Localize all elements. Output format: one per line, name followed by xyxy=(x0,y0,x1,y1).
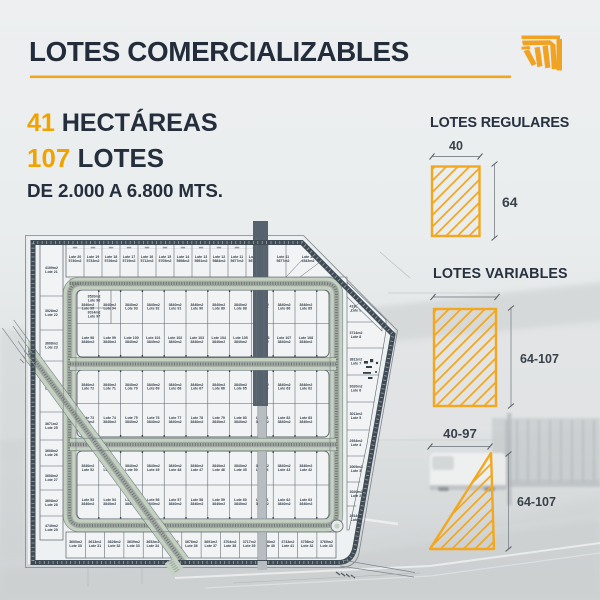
svg-text:3840m2: 3840m2 xyxy=(299,420,312,424)
svg-text:107 LOTES: 107 LOTES xyxy=(27,145,164,173)
svg-text:Lote 34: Lote 34 xyxy=(147,544,159,548)
svg-text:Lote 49: Lote 49 xyxy=(147,468,159,472)
svg-text:Lote 50: Lote 50 xyxy=(125,468,137,472)
svg-text:Lote 26: Lote 26 xyxy=(45,453,57,457)
svg-text:Lote 94: Lote 94 xyxy=(103,307,115,311)
svg-text:3840m2: 3840m2 xyxy=(299,340,312,344)
svg-text:Lote 45: Lote 45 xyxy=(234,468,246,472)
svg-text:Lote 21: Lote 21 xyxy=(45,270,57,274)
svg-text:Lote 92: Lote 92 xyxy=(147,307,159,311)
svg-text:5733m2: 5733m2 xyxy=(86,259,99,263)
svg-text:Lote 42: Lote 42 xyxy=(301,544,313,548)
svg-text:3840m2: 3840m2 xyxy=(169,502,182,506)
svg-text:Lote 97: Lote 97 xyxy=(88,314,100,318)
svg-text:3840m2: 3840m2 xyxy=(125,340,138,344)
svg-text:Lote 65: Lote 65 xyxy=(234,387,246,391)
svg-text:Lote 42: Lote 42 xyxy=(300,468,312,472)
svg-text:Lote 62: Lote 62 xyxy=(300,387,312,391)
svg-text:Lote 89: Lote 89 xyxy=(212,307,224,311)
svg-text:Lote 71: Lote 71 xyxy=(103,387,115,391)
svg-text:Lote 88: Lote 88 xyxy=(234,307,246,311)
svg-text:3840m2: 3840m2 xyxy=(147,420,160,424)
svg-text:3840m2: 3840m2 xyxy=(190,502,203,506)
svg-text:5698m2: 5698m2 xyxy=(176,259,189,263)
svg-text:3840m2: 3840m2 xyxy=(169,420,182,424)
svg-text:Lote 90: Lote 90 xyxy=(191,307,203,311)
svg-text:Lote 72: Lote 72 xyxy=(82,387,94,391)
svg-text:Lote 37: Lote 37 xyxy=(204,544,216,548)
svg-text:Lote 47: Lote 47 xyxy=(191,468,203,472)
svg-text:Lote 43: Lote 43 xyxy=(320,544,332,548)
svg-text:Lote 29: Lote 29 xyxy=(45,528,57,532)
svg-text:3840m2: 3840m2 xyxy=(212,340,225,344)
svg-text:40-97: 40-97 xyxy=(443,426,477,441)
svg-text:LOTES VARIABLES: LOTES VARIABLES xyxy=(433,266,568,282)
svg-text:3840m2: 3840m2 xyxy=(103,502,116,506)
svg-text:Lote 93: Lote 93 xyxy=(125,307,137,311)
svg-text:Lote 28: Lote 28 xyxy=(45,503,57,507)
svg-text:LOTES REGULARES: LOTES REGULARES xyxy=(430,115,569,131)
svg-text:3840m2: 3840m2 xyxy=(103,420,116,424)
svg-text:3840m2: 3840m2 xyxy=(299,502,312,506)
svg-text:3840m2: 3840m2 xyxy=(278,502,291,506)
svg-text:Lote 68: Lote 68 xyxy=(169,387,181,391)
svg-text:3840m2: 3840m2 xyxy=(278,340,291,344)
svg-text:Lote 41: Lote 41 xyxy=(282,544,294,548)
svg-text:3840m2: 3840m2 xyxy=(81,340,94,344)
svg-text:5740m2: 5740m2 xyxy=(68,259,81,263)
svg-text:Lote 66: Lote 66 xyxy=(212,387,224,391)
svg-text:3840m2: 3840m2 xyxy=(147,340,160,344)
svg-text:Lote 43: Lote 43 xyxy=(278,468,290,472)
svg-text:5712m2: 5712m2 xyxy=(140,259,153,263)
svg-text:Lote 48: Lote 48 xyxy=(169,468,181,472)
svg-text:Lote 52: Lote 52 xyxy=(82,468,94,472)
svg-text:5677m2: 5677m2 xyxy=(230,259,243,263)
svg-text:5691m2: 5691m2 xyxy=(194,259,207,263)
svg-text:Lote 86: Lote 86 xyxy=(278,307,290,311)
svg-text:3840m2: 3840m2 xyxy=(234,420,247,424)
svg-text:3840m2: 3840m2 xyxy=(234,340,247,344)
svg-text:Lote 3: Lote 3 xyxy=(351,469,361,473)
svg-text:41 HECTÁREAS: 41 HECTÁREAS xyxy=(27,108,218,137)
svg-text:5726m2: 5726m2 xyxy=(104,259,117,263)
svg-text:64-107: 64-107 xyxy=(520,352,559,366)
svg-text:3840m2: 3840m2 xyxy=(212,502,225,506)
svg-text:Lote 39: Lote 39 xyxy=(243,544,255,548)
svg-text:64-107: 64-107 xyxy=(517,495,556,509)
svg-text:Lote 22: Lote 22 xyxy=(45,313,57,317)
svg-text:Lote 63: Lote 63 xyxy=(278,387,290,391)
svg-text:3840m2: 3840m2 xyxy=(125,420,138,424)
svg-text:3840m2: 3840m2 xyxy=(212,420,225,424)
svg-text:4543m2: 4543m2 xyxy=(301,259,314,263)
svg-text:40: 40 xyxy=(449,139,463,153)
svg-text:3840m2: 3840m2 xyxy=(190,340,203,344)
svg-text:3840m2: 3840m2 xyxy=(169,340,182,344)
svg-text:Lote 5: Lote 5 xyxy=(351,416,361,420)
svg-text:3840m2: 3840m2 xyxy=(234,502,247,506)
svg-text:Lote 8: Lote 8 xyxy=(351,335,361,339)
svg-text:3840m2: 3840m2 xyxy=(190,420,203,424)
svg-text:Lote 32: Lote 32 xyxy=(108,544,120,548)
svg-text:Lote 33: Lote 33 xyxy=(127,544,139,548)
svg-text:Lote 38: Lote 38 xyxy=(224,544,236,548)
svg-text:LOTES COMERCIALIZABLES: LOTES COMERCIALIZABLES xyxy=(29,36,409,67)
svg-text:Lote 70: Lote 70 xyxy=(125,387,137,391)
svg-text:Lote 30: Lote 30 xyxy=(69,544,81,548)
svg-text:5677m2: 5677m2 xyxy=(276,259,289,263)
svg-text:3840m2: 3840m2 xyxy=(103,340,116,344)
svg-text:Lote 2: Lote 2 xyxy=(351,494,361,498)
svg-text:Lote 69: Lote 69 xyxy=(147,387,159,391)
svg-text:Lote 7: Lote 7 xyxy=(351,361,361,365)
svg-text:Lote 96: Lote 96 xyxy=(88,298,100,302)
svg-text:Lote 6: Lote 6 xyxy=(351,388,361,392)
svg-text:Lote 25: Lote 25 xyxy=(45,426,57,430)
svg-text:Lote 23: Lote 23 xyxy=(45,345,57,349)
svg-text:5684m2: 5684m2 xyxy=(212,259,225,263)
svg-text:Lote 27: Lote 27 xyxy=(45,478,57,482)
svg-text:5705m2: 5705m2 xyxy=(158,259,171,263)
svg-text:DE 2.000 A 6.800 MTS.: DE 2.000 A 6.800 MTS. xyxy=(27,180,223,201)
svg-text:Lote 46: Lote 46 xyxy=(212,468,224,472)
svg-text:Lote 85: Lote 85 xyxy=(300,307,312,311)
svg-text:3840m2: 3840m2 xyxy=(81,502,94,506)
svg-text:Lote 91: Lote 91 xyxy=(169,307,181,311)
svg-text:3840m2: 3840m2 xyxy=(278,420,291,424)
svg-text:Lote 67: Lote 67 xyxy=(191,387,203,391)
svg-text:Lote 31: Lote 31 xyxy=(89,544,101,548)
svg-text:64: 64 xyxy=(502,194,518,210)
svg-text:Lote 36: Lote 36 xyxy=(185,544,197,548)
svg-text:5719m2: 5719m2 xyxy=(122,259,135,263)
svg-text:Lote 4: Lote 4 xyxy=(351,443,361,447)
